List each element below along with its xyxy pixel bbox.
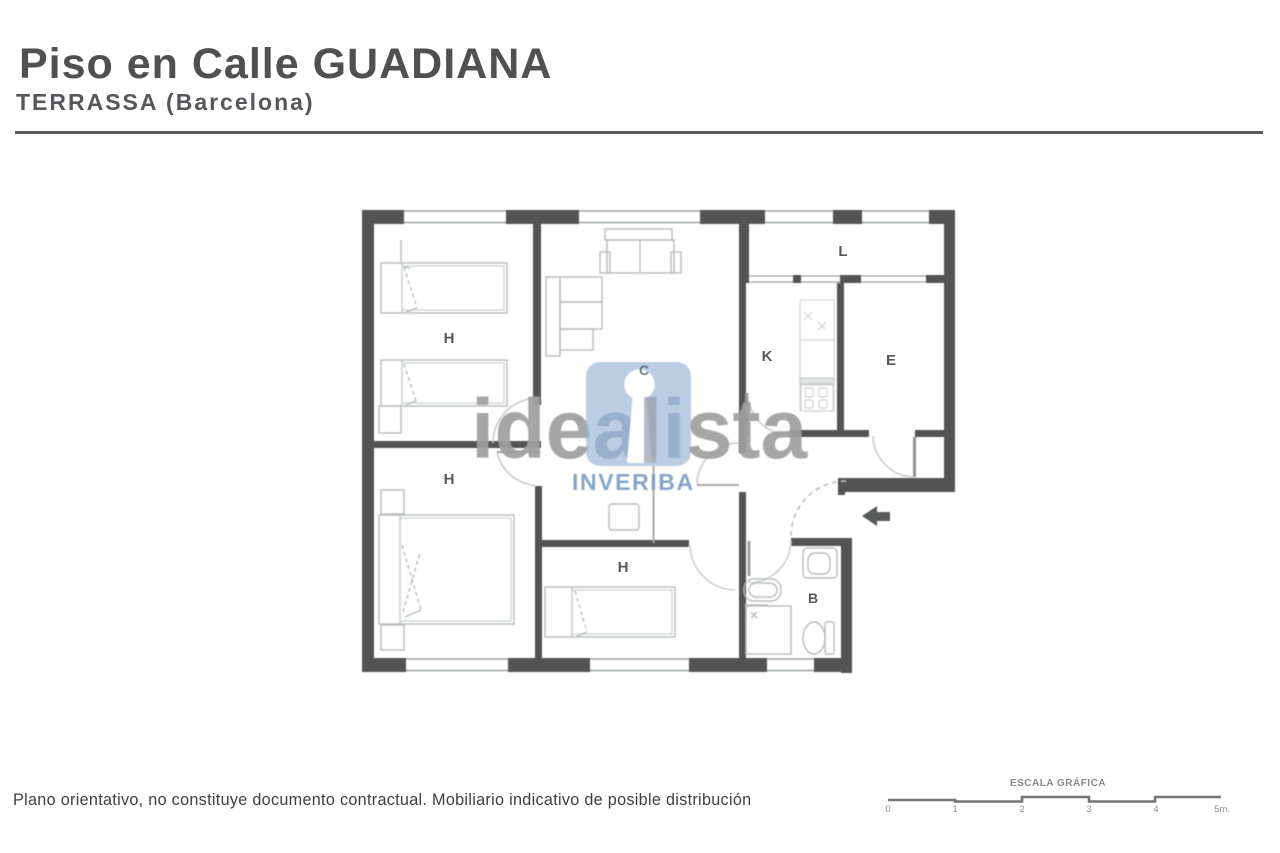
svg-text:ESCALA GRÁFICA: ESCALA GRÁFICA: [1010, 776, 1106, 789]
svg-text:2: 2: [1019, 804, 1024, 815]
svg-text:H: H: [618, 559, 629, 576]
svg-text:H: H: [444, 330, 455, 347]
svg-text:K: K: [762, 348, 773, 365]
svg-text:L: L: [838, 243, 847, 260]
svg-text:INVERIBA: INVERIBA: [572, 469, 695, 495]
svg-text:E: E: [886, 352, 896, 369]
svg-text:C: C: [639, 362, 649, 378]
svg-text:Plano orientativo, no constitu: Plano orientativo, no constituye documen…: [13, 791, 751, 809]
svg-text:1: 1: [952, 804, 957, 815]
svg-text:4: 4: [1153, 804, 1158, 815]
svg-text:B: B: [808, 590, 818, 606]
svg-text:3: 3: [1086, 804, 1091, 815]
svg-text:5m.: 5m.: [1214, 804, 1230, 815]
svg-text:Piso en Calle GUADIANA: Piso en Calle GUADIANA: [19, 40, 552, 88]
svg-text:TERRASSA (Barcelona): TERRASSA (Barcelona): [16, 89, 315, 115]
svg-text:H: H: [444, 471, 455, 488]
svg-text:0: 0: [885, 804, 890, 815]
